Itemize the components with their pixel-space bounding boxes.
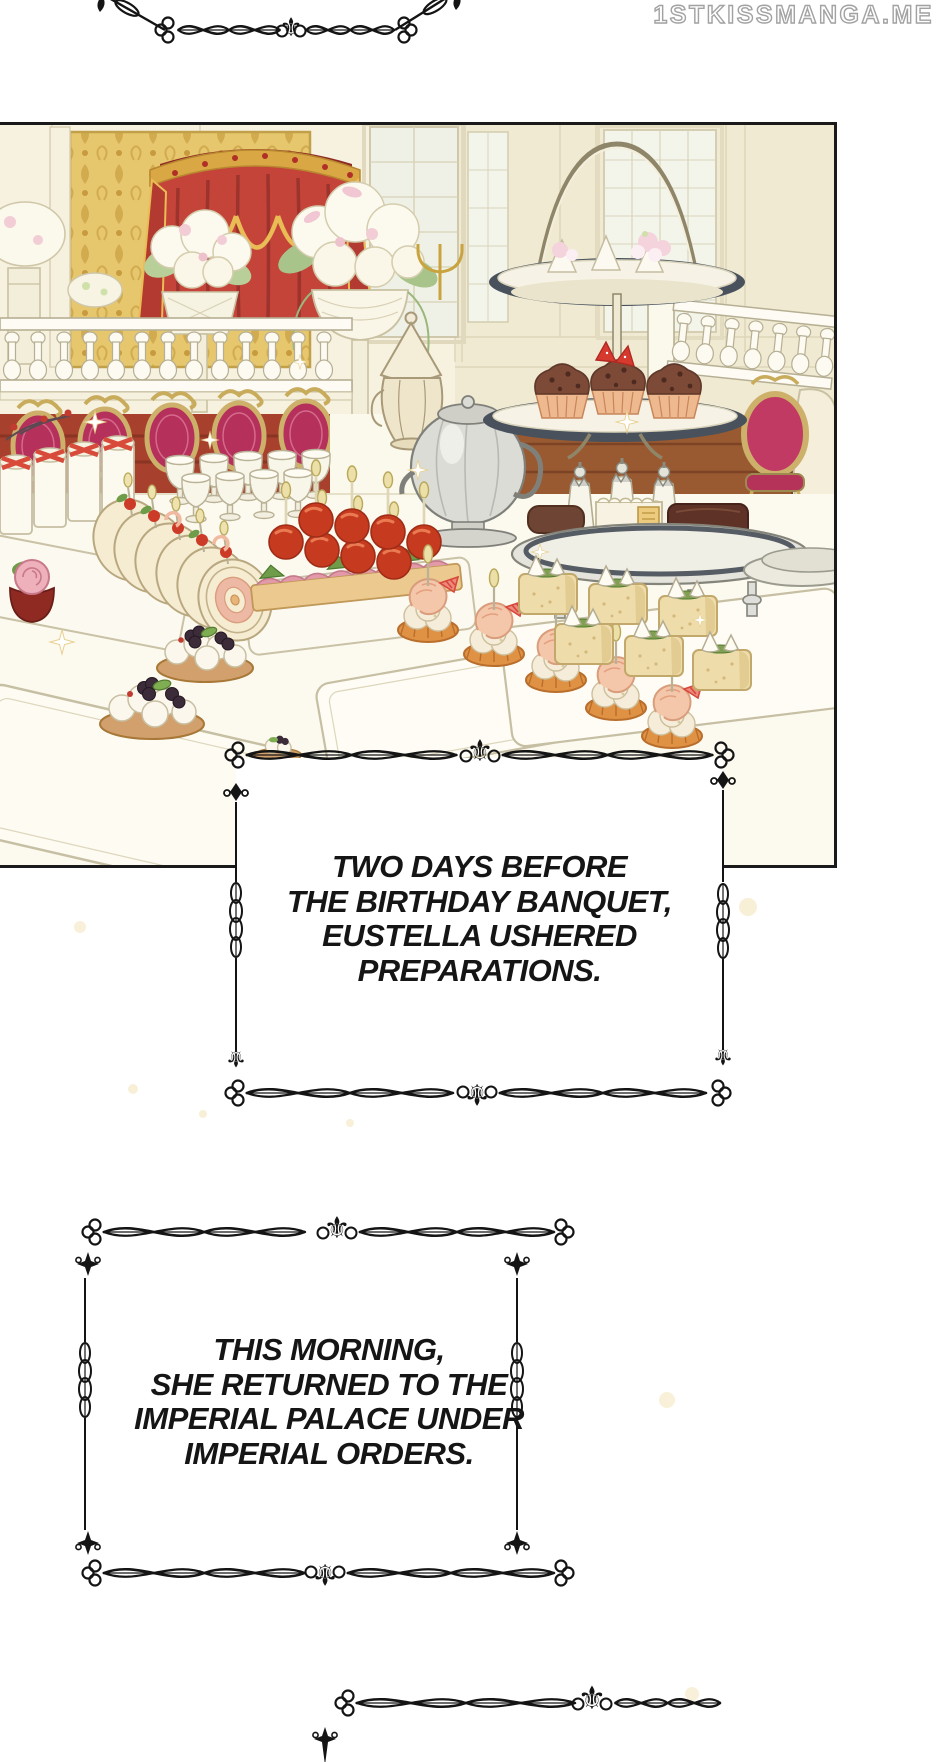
ham-rose-canape — [10, 560, 54, 622]
caption-line: THE BIRTHDAY BANQUET, — [287, 885, 672, 920]
caption-line: IMPERIAL ORDERS. — [184, 1437, 473, 1472]
sparkle-dot — [659, 1392, 675, 1408]
sparkle-dot — [346, 1119, 354, 1127]
banquet-hall-illustration — [0, 122, 837, 868]
sparkle-dot — [199, 1110, 207, 1118]
caption-line: TWO DAYS BEFORE — [332, 850, 627, 885]
sparkle-dot — [739, 898, 757, 916]
caption-line: THIS MORNING, — [213, 1333, 444, 1368]
watermark-text: 1STKISSMANGA.ME — [653, 1, 934, 30]
caption-line: PREPARATIONS. — [358, 954, 602, 989]
caption-line: SHE RETURNED TO THE — [151, 1368, 508, 1403]
caption-line: IMPERIAL PALACE UNDER — [134, 1402, 524, 1437]
caption-box-1: TWO DAYS BEFORE THE BIRTHDAY BANQUET, EU… — [236, 758, 723, 1090]
flower-puff-small — [68, 273, 122, 307]
caption-box-2: THIS MORNING, SHE RETURNED TO THE IMPERI… — [85, 1240, 517, 1546]
caption-text-1: TWO DAYS BEFORE THE BIRTHDAY BANQUET, EU… — [236, 758, 723, 1090]
comic-page: 1STKISSMANGA.ME ⚜ — [0, 0, 940, 1762]
sparkle-dot — [74, 921, 86, 933]
caption-text-2: THIS MORNING, SHE RETURNED TO THE IMPERI… — [113, 1240, 545, 1546]
sparkle-dot — [128, 1084, 138, 1094]
caption-line: EUSTELLA USHERED — [322, 919, 637, 954]
sparkle-dot — [685, 1687, 699, 1701]
